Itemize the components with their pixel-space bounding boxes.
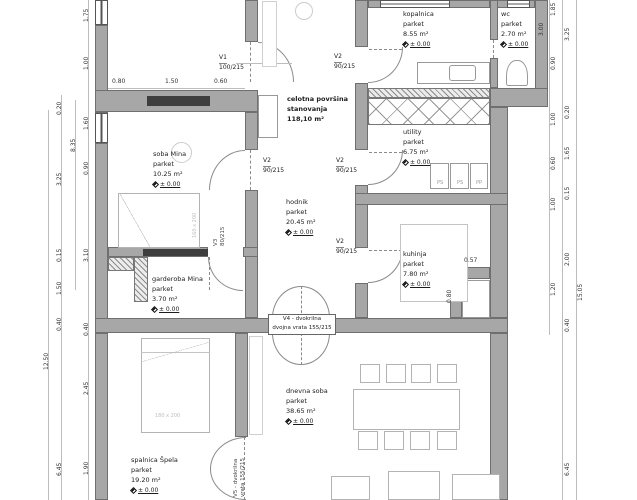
elevation-icon xyxy=(285,418,292,425)
room-area: 8.55 m² xyxy=(403,30,434,40)
elevation-value: ± 0.00 xyxy=(160,180,180,189)
total-area-value: 118,10 m² xyxy=(287,115,348,125)
room-label-kuhinja: kuhinja parket 7.80 m² ± 0.00 xyxy=(403,250,430,289)
room-finish: parket xyxy=(501,20,528,30)
room-area: 7.80 m² xyxy=(403,270,430,280)
dim-label: 3.10 xyxy=(84,249,90,262)
door-size: 80/215 xyxy=(220,227,227,246)
door-leaf xyxy=(493,40,494,58)
wall xyxy=(330,318,508,333)
room-area: 10.25 m² xyxy=(153,170,186,180)
wall xyxy=(95,318,272,333)
window xyxy=(143,249,208,256)
bed-fold-line xyxy=(120,194,150,247)
elevation-marker: ± 0.00 xyxy=(286,417,328,426)
dim-label: 2.00 xyxy=(565,253,571,266)
door-arc xyxy=(368,47,403,83)
door-label-v2: V2 90/215 xyxy=(263,157,284,175)
dining-table xyxy=(353,389,460,430)
door-size: 90/215 xyxy=(336,248,357,256)
dim-label: 0.40 xyxy=(565,319,571,332)
wall xyxy=(490,88,548,107)
wall xyxy=(355,193,508,205)
door-name: V2 xyxy=(336,157,344,167)
door-label-v2: V2 90/215 xyxy=(334,53,355,71)
room-area: 2.70 m² xyxy=(501,30,528,40)
room-label-wc: wc parket 2.70 m² ± 0.00 xyxy=(501,10,528,49)
dim-label: 1.00 xyxy=(84,57,90,70)
chair xyxy=(437,364,457,383)
total-area-line1: celotna površina xyxy=(287,95,348,105)
wall xyxy=(95,333,108,500)
hatched-wall xyxy=(108,257,134,271)
dim-label: 1.85 xyxy=(551,3,557,16)
bed-fold-line xyxy=(141,342,210,362)
door-name: V3 xyxy=(213,227,220,246)
elevation-marker: ± 0.00 xyxy=(403,40,434,49)
room-name: spalnica Špela xyxy=(131,456,178,466)
armchair xyxy=(331,476,370,500)
window xyxy=(95,0,108,25)
dim-label: 3.00 xyxy=(539,23,545,36)
cabinet-outline xyxy=(262,1,277,67)
room-area: 38.65 m² xyxy=(286,407,328,417)
chair xyxy=(384,431,404,450)
dim-label: 12.50 xyxy=(44,353,50,370)
door-label-v2: V2 90/215 xyxy=(336,157,357,175)
sink xyxy=(449,65,476,81)
armchair xyxy=(452,474,500,500)
dim-label: 3.25 xyxy=(57,173,63,186)
dim-label: 15.05 xyxy=(578,284,584,301)
elevation-marker: ± 0.00 xyxy=(131,486,178,495)
room-name: garderoba Mina xyxy=(152,275,203,285)
wall xyxy=(355,283,368,318)
dim-label: 1.75 xyxy=(84,9,90,22)
elevation-marker: ± 0.00 xyxy=(403,280,430,289)
dimension-line xyxy=(61,95,62,500)
total-area-label: celotna površina stanovanja 118,10 m² xyxy=(287,95,348,124)
door-desc-line2: dvojna vrata 155/215 xyxy=(272,325,331,331)
door-leaf xyxy=(250,150,251,190)
elevation-icon xyxy=(151,306,158,313)
wall xyxy=(490,107,508,318)
door-name: V2 xyxy=(336,238,344,248)
room-finish: parket xyxy=(286,397,328,407)
dim-label: 0.60 xyxy=(551,157,557,170)
dim-label: 1.65 xyxy=(565,147,571,160)
room-label-dnevna: dnevna soba parket 38.65 m² ± 0.00 xyxy=(286,387,328,426)
elevation-value: ± 0.00 xyxy=(159,305,179,314)
wall xyxy=(95,143,108,333)
door-size: 90/215 xyxy=(334,63,355,71)
dim-label: 0.20 xyxy=(57,102,63,115)
door-arc xyxy=(272,333,301,365)
dim-label: 0.15 xyxy=(565,187,571,200)
wall xyxy=(245,0,258,42)
door-leaf xyxy=(369,49,402,50)
door-leaf xyxy=(369,152,402,153)
hatched-wall xyxy=(134,257,148,302)
elevation-value: ± 0.00 xyxy=(293,228,313,237)
door-desc-line2: vrata 155/215 xyxy=(240,458,247,497)
room-area: 20.45 m² xyxy=(286,218,316,228)
dim-label: 1.00 xyxy=(551,198,557,211)
dim-label: 0.80 xyxy=(112,79,125,85)
dim-label: 6.45 xyxy=(57,463,63,476)
room-finish: parket xyxy=(403,138,430,148)
appliance-label: PS xyxy=(457,181,463,186)
door-arc xyxy=(208,257,243,291)
floor-plan-canvas: PS PS PP 160 x 200 180 x 200 celotna pov… xyxy=(0,0,637,500)
elevation-value: ± 0.00 xyxy=(410,158,430,167)
room-name: hodnik xyxy=(286,198,316,208)
appliance-label: PP xyxy=(476,181,482,186)
wall xyxy=(535,0,548,97)
dim-label: 0.40 xyxy=(57,318,63,331)
elevation-value: ± 0.00 xyxy=(410,40,430,49)
elevation-icon xyxy=(285,229,292,236)
door-name: V1 xyxy=(219,54,227,64)
room-finish: parket xyxy=(403,260,430,270)
door-leaf xyxy=(301,333,302,365)
window xyxy=(147,96,210,106)
dim-label: 1.90 xyxy=(84,462,90,475)
elevation-value: ± 0.00 xyxy=(508,40,528,49)
sofa xyxy=(388,471,440,500)
dimension-line xyxy=(562,0,563,500)
wall xyxy=(243,247,258,257)
door-label-v3: V3 80/215 xyxy=(213,227,226,246)
room-label-kopalnica: kopalnica parket 8.55 m² ± 0.00 xyxy=(403,10,434,49)
door-name: V2 xyxy=(334,53,342,63)
room-name: wc xyxy=(501,10,528,20)
dim-label: 0.40 xyxy=(84,323,90,336)
light-circle xyxy=(295,2,313,20)
dim-label: 1.20 xyxy=(551,283,557,296)
bed-size-label: 180 x 200 xyxy=(155,414,180,419)
bed-size-label: 160 x 200 xyxy=(193,213,198,238)
toilet xyxy=(506,60,528,86)
door-label-v2: V2 90/215 xyxy=(336,238,357,256)
elevation-icon xyxy=(500,41,507,48)
total-area-line2: stanovanja xyxy=(287,105,348,115)
window xyxy=(95,113,108,143)
wall xyxy=(235,333,248,437)
dim-label: 0.60 xyxy=(214,79,227,85)
room-area: 19.20 m² xyxy=(131,476,178,486)
elevation-icon xyxy=(402,281,409,288)
wall xyxy=(245,112,258,150)
dim-label: 8.35 xyxy=(71,139,77,152)
door-label-v4: V4 - dvokrilna dvojna vrata 155/215 xyxy=(268,314,336,335)
room-label-garderoba: garderoba Mina parket 3.70 m² ± 0.00 xyxy=(152,275,203,314)
closet-crosshatch xyxy=(368,98,490,125)
elevation-marker: ± 0.00 xyxy=(153,180,186,189)
room-finish: parket xyxy=(152,285,203,295)
elevation-marker: ± 0.00 xyxy=(152,305,203,314)
door-desc-line1: V5 - dvokrilna xyxy=(233,458,240,497)
dim-label: 0.90 xyxy=(551,57,557,70)
dim-label: 1.60 xyxy=(84,117,90,130)
chair xyxy=(358,431,378,450)
door-size: 100/215 xyxy=(219,64,244,72)
window xyxy=(380,0,450,8)
elevation-marker: ± 0.00 xyxy=(403,158,430,167)
dim-label: 0.80 xyxy=(447,290,453,303)
dim-label: 2.45 xyxy=(84,382,90,395)
elevation-icon xyxy=(402,41,409,48)
elevation-marker: ± 0.00 xyxy=(286,228,316,237)
room-name: kuhinja xyxy=(403,250,430,260)
door-size: 90/215 xyxy=(263,167,284,175)
window xyxy=(507,0,530,8)
dimension-line xyxy=(576,0,577,500)
room-label-spalnica: spalnica Špela parket 19.20 m² ± 0.00 xyxy=(131,456,178,495)
door-desc-line1: V4 - dvokrilna xyxy=(283,316,321,322)
elevation-icon xyxy=(130,487,137,494)
dim-label: 0.57 xyxy=(464,258,477,264)
room-name: utility xyxy=(403,128,430,138)
dim-label: 6.45 xyxy=(565,463,571,476)
room-finish: parket xyxy=(403,20,434,30)
room-finish: parket xyxy=(286,208,316,218)
dim-label: 0.90 xyxy=(84,162,90,175)
chair xyxy=(437,431,457,450)
wall xyxy=(490,58,498,88)
door-size: 90/215 xyxy=(336,167,357,175)
dim-label: 1.50 xyxy=(57,282,63,295)
room-name: kopalnica xyxy=(403,10,434,20)
room-label-soba-mina: soba Mina parket 10.25 m² ± 0.00 xyxy=(153,150,186,189)
chair xyxy=(410,431,430,450)
elevation-marker: ± 0.00 xyxy=(501,40,528,49)
door-arc xyxy=(209,150,245,190)
elevation-value: ± 0.00 xyxy=(293,417,313,426)
chair xyxy=(411,364,431,383)
elevation-value: ± 0.00 xyxy=(138,486,158,495)
room-finish: parket xyxy=(153,160,186,170)
room-area: 6.75 m² xyxy=(403,148,430,158)
hatched-wall xyxy=(368,88,490,98)
dim-label: 1.00 xyxy=(551,113,557,126)
elevation-icon xyxy=(402,159,409,166)
room-finish: parket xyxy=(131,466,178,476)
appliance-label: PS xyxy=(437,181,443,186)
room-area: 3.70 m² xyxy=(152,295,203,305)
chair xyxy=(386,364,406,383)
dim-label: 0.15 xyxy=(57,249,63,262)
room-label-hodnik: hodnik parket 20.45 m² ± 0.00 xyxy=(286,198,316,237)
door-label-v1: V1 100/215 xyxy=(219,54,244,72)
door-leaf xyxy=(250,42,251,82)
radiator xyxy=(258,95,278,138)
wardrobe-outline xyxy=(249,336,263,435)
room-label-utility: utility parket 6.75 m² ± 0.00 xyxy=(403,128,430,167)
dimension-line xyxy=(108,88,245,89)
door-leaf xyxy=(369,250,402,251)
room-name: soba Mina xyxy=(153,150,186,160)
elevation-icon xyxy=(152,181,159,188)
wall xyxy=(355,0,368,47)
room-name: dnevna soba xyxy=(286,387,328,397)
dimension-line xyxy=(48,110,49,500)
dim-label: 1.50 xyxy=(165,79,178,85)
door-leaf xyxy=(209,257,210,290)
door-arc xyxy=(368,150,403,185)
dim-label: 0.20 xyxy=(565,106,571,119)
door-label-v5: V5 - dvokrilna vrata 155/215 xyxy=(233,458,246,497)
wall xyxy=(355,83,368,150)
dimension-line xyxy=(75,100,76,290)
door-arc xyxy=(301,333,330,365)
elevation-value: ± 0.00 xyxy=(410,280,430,289)
dim-label: 3.25 xyxy=(565,28,571,41)
door-name: V2 xyxy=(263,157,271,167)
door-arc xyxy=(368,248,403,283)
chair xyxy=(360,364,380,383)
